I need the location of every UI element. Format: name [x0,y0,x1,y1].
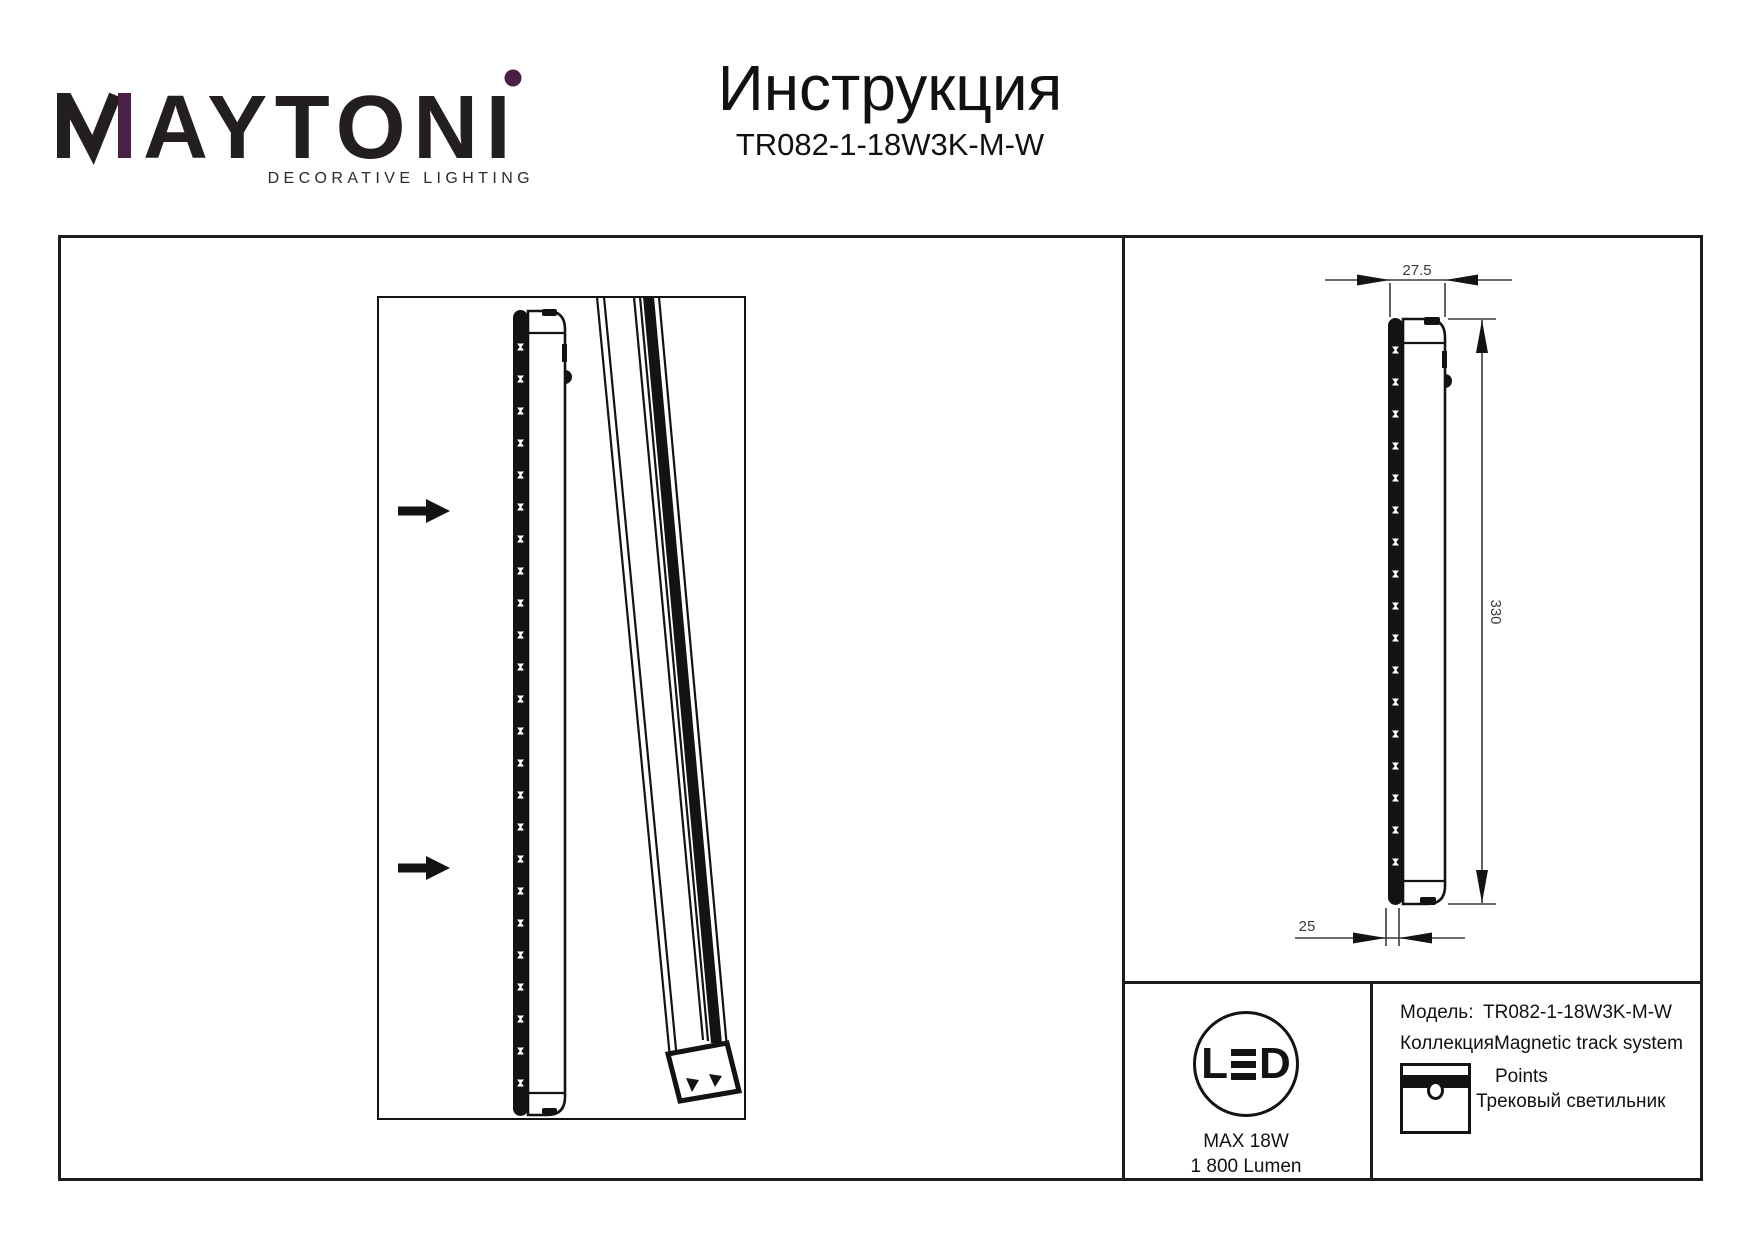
title-block: Инструкция TR082-1-18W3K-M-W [590,55,1190,163]
panel-divider [1122,235,1125,1181]
collection-value: Magnetic track system [1494,1033,1683,1055]
series-name: Points [1495,1066,1548,1088]
brand-i-dot-icon [505,70,522,87]
led-badge: L D [1193,1011,1299,1117]
maytoni-m-icon [57,93,131,158]
installation-drawing-frame [377,296,746,1120]
maytoni-logo: AYTONI [57,66,539,178]
product-type: Трековый светильник [1476,1091,1665,1113]
brand-tagline: DECORATIVE LIGHTING [57,170,534,188]
led-letter-d: D [1259,1042,1291,1086]
led-letter-l: L [1201,1042,1228,1086]
luminous-flux: 1 800 Lumen [1122,1156,1370,1178]
instruction-sheet: AYTONI DECORATIVE LIGHTING Инструкция TR… [0,0,1754,1241]
brand-word: AYTONI [143,78,518,178]
led-icon: L D [1201,1042,1291,1086]
page-title: Инструкция [590,55,1190,122]
model-label: Модель: [1400,1002,1473,1024]
led-letter-e-bars-icon [1231,1049,1256,1080]
header-model-code: TR082-1-18W3K-M-W [590,127,1190,163]
info-section-border [1122,981,1703,984]
collection-label: Коллекция: [1400,1033,1499,1055]
info-cell-divider [1370,981,1373,1181]
track-light-icon [1400,1063,1471,1134]
model-value: TR082-1-18W3K-M-W [1483,1002,1672,1024]
max-power: MAX 18W [1122,1131,1370,1153]
track-knob [1427,1081,1444,1100]
